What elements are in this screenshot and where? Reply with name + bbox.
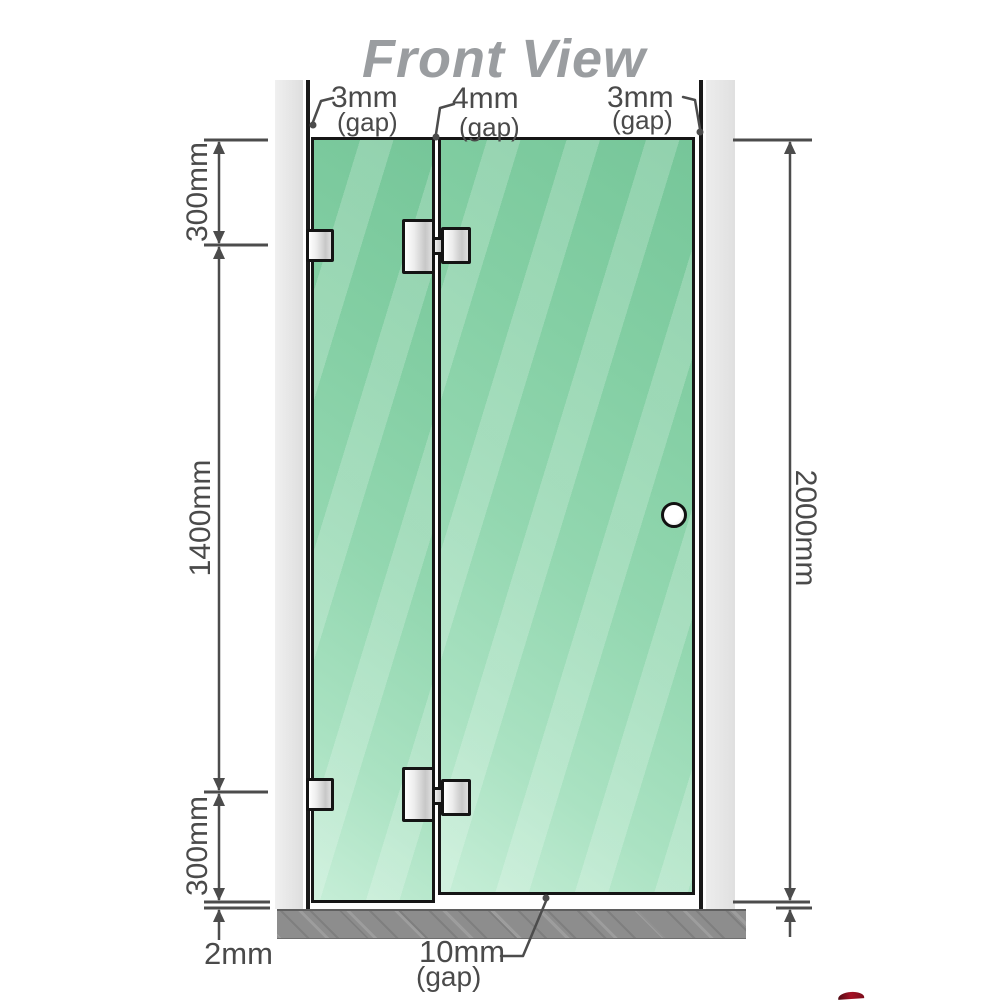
gap-caption-top-right: (gap)	[612, 107, 673, 133]
dimension-ticks	[204, 140, 812, 908]
floor-gap-label-2mm: 2mm	[204, 938, 273, 969]
height-label-top-300mm: 300mm	[183, 112, 213, 272]
leader-dots	[310, 122, 704, 902]
height-label-bottom-300mm: 300mm	[183, 766, 213, 926]
leader-lines	[313, 97, 700, 956]
gap-caption-top-middle: (gap)	[459, 114, 520, 140]
gap-caption-top-left: (gap)	[337, 109, 398, 135]
dimension-lines-layer	[0, 0, 1000, 1000]
shower-screen-front-view-diagram: Front View	[0, 0, 1000, 1000]
gap-label-top-middle: 4mm	[452, 84, 519, 114]
height-label-total-2000mm: 2000mm	[790, 443, 820, 613]
floor-gap-caption-10mm: (gap)	[416, 963, 481, 991]
height-label-middle-1400mm: 1400mm	[186, 438, 216, 598]
dimension-arrowheads	[213, 141, 796, 922]
dimension-lines	[219, 142, 790, 940]
